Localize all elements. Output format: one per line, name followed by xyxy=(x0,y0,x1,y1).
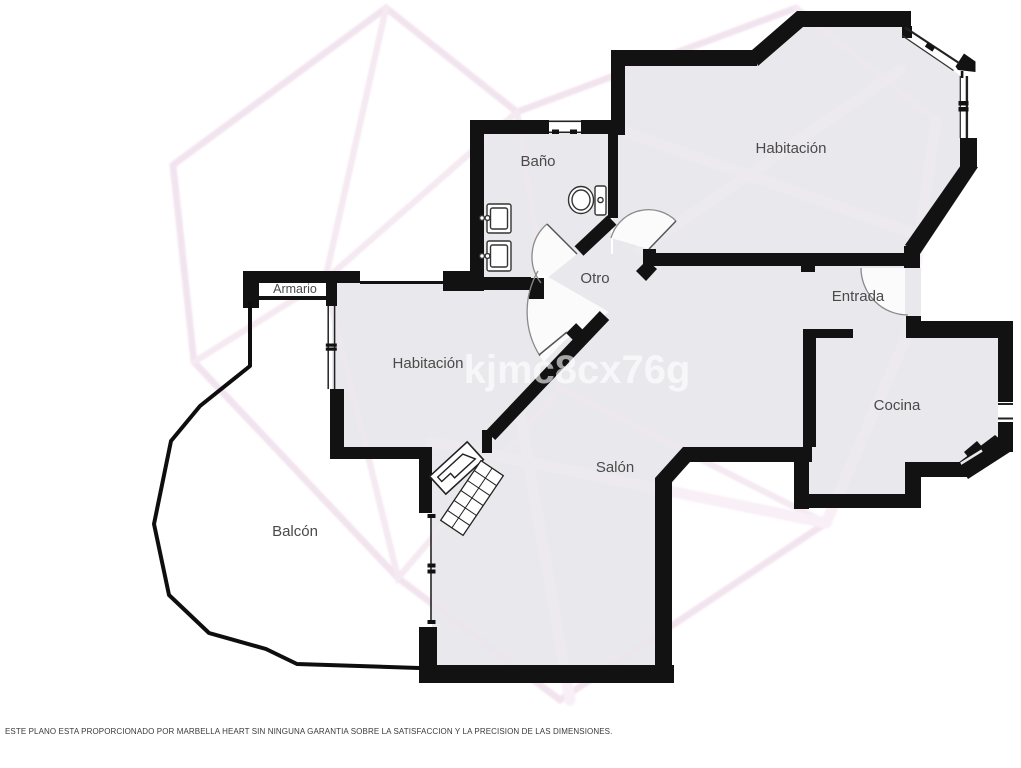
svg-text:Balcón: Balcón xyxy=(272,523,318,540)
svg-text:Baño: Baño xyxy=(520,153,555,170)
svg-text:ESTE PLANO ESTA PROPORCIONADO: ESTE PLANO ESTA PROPORCIONADO POR MARBEL… xyxy=(5,727,612,736)
svg-text:Armario: Armario xyxy=(273,282,317,296)
svg-text:Cocina: Cocina xyxy=(874,397,921,414)
svg-text:Habitación: Habitación xyxy=(393,355,464,372)
svg-text:Salón: Salón xyxy=(596,459,634,476)
svg-text:Entrada: Entrada xyxy=(832,288,885,305)
svg-text:kjmc8cx76g: kjmc8cx76g xyxy=(464,348,691,392)
svg-text:Habitación: Habitación xyxy=(756,140,827,157)
svg-text:Otro: Otro xyxy=(580,270,609,287)
